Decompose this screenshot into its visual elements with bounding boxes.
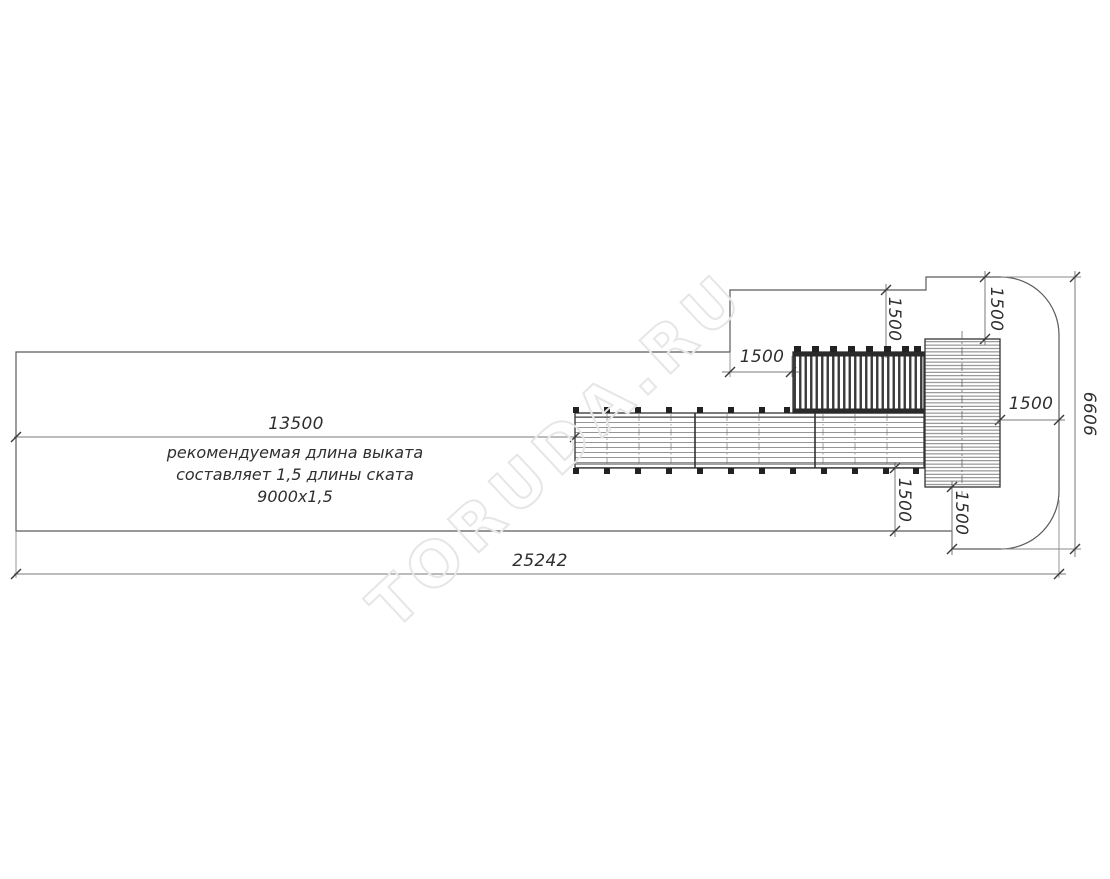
note-line-3: 9000х1,5	[145, 486, 445, 508]
dim-1500-gap-label: 1500	[740, 347, 784, 367]
dim-1500-top-tower-label: 1500	[986, 287, 1006, 331]
ladder-bridge	[793, 346, 924, 413]
dim-6606-label: 6606	[1079, 392, 1099, 436]
dim-13500-label: 13500	[268, 414, 324, 434]
dim-1500-top-ladder-label: 1500	[884, 297, 904, 341]
ladder-posts	[794, 346, 921, 352]
dim-1500-bottom-tower-label: 1500	[951, 491, 971, 535]
recommendation-note: рекомендуемая длина выката составляет 1,…	[145, 442, 445, 508]
tower-platform	[925, 331, 1000, 495]
dim-1500-right-label: 1500	[1009, 394, 1053, 414]
drawing-canvas: TORUDA.RU 13500 рекомендуемая длина выка…	[0, 0, 1110, 879]
dim-25242-label: 25242	[512, 551, 568, 571]
dim-1500-bottom-chute-label: 1500	[894, 478, 914, 522]
note-line-1: рекомендуемая длина выката	[145, 442, 445, 464]
note-line-2: составляет 1,5 длины ската	[145, 464, 445, 486]
